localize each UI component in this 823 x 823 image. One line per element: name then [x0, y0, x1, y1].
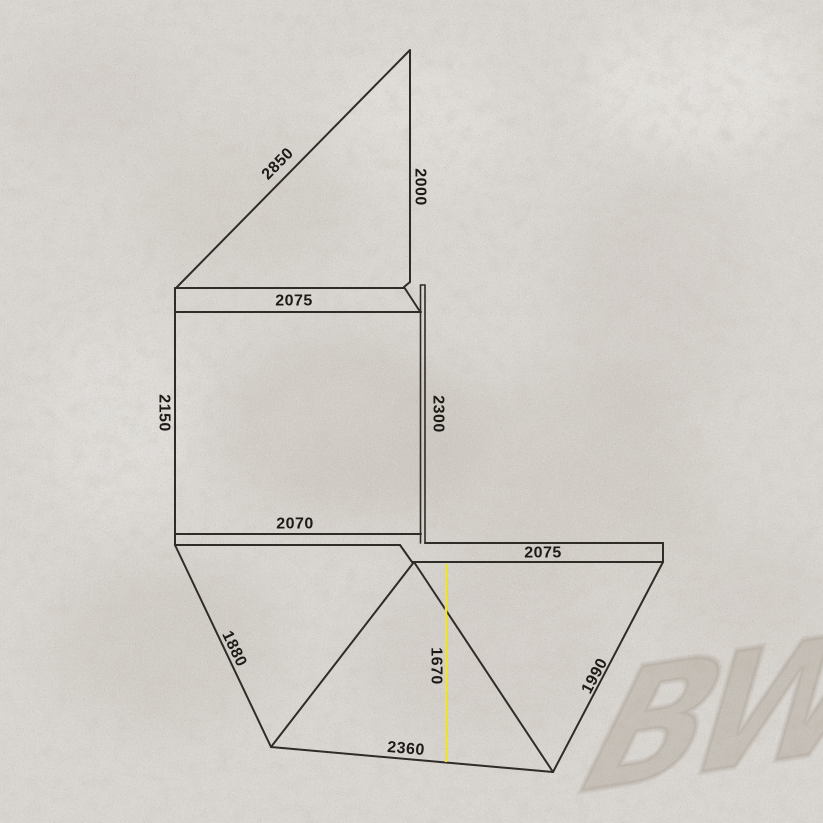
dim-center-drop: 1670: [428, 647, 445, 685]
dim-main-bottom-width: 2070: [276, 516, 314, 533]
diagram-canvas: BW: [0, 0, 823, 823]
dim-top-side: 2000: [412, 168, 429, 206]
awning-dimension-diagram: BW: [0, 0, 823, 823]
dim-right-panel-width: 2075: [524, 545, 562, 562]
dim-main-left-height: 2150: [156, 394, 173, 432]
dim-main-right-height: 2300: [430, 395, 447, 433]
dim-bottom-edge: 2360: [387, 739, 426, 759]
dim-main-top-width: 2075: [275, 293, 313, 310]
